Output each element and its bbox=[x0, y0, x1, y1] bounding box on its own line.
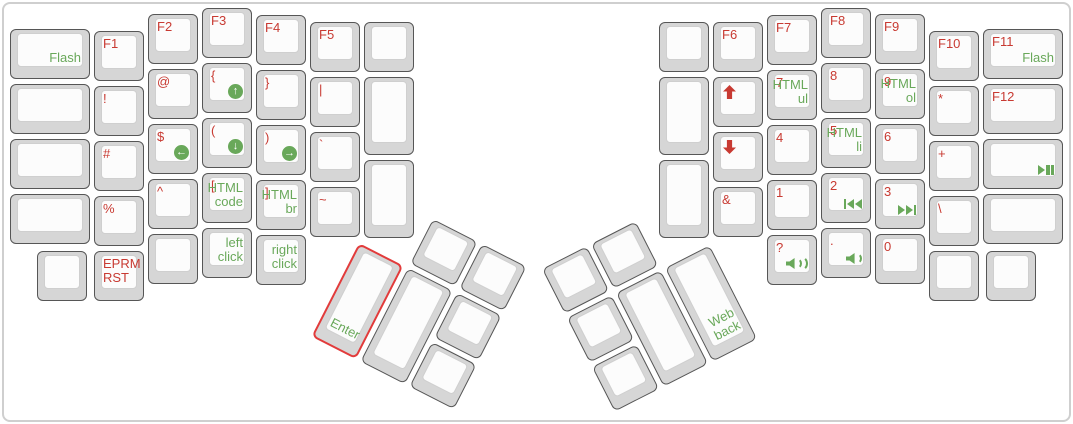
key-caret[interactable]: ^ bbox=[148, 179, 198, 229]
key-four[interactable]: 4 bbox=[767, 125, 817, 175]
key-dollar-mouse-left[interactable]: $← bbox=[148, 124, 198, 174]
keycap-surface bbox=[666, 26, 702, 60]
key-seven-html-ul[interactable]: 7HTML ul bbox=[767, 70, 817, 120]
keycap-surface bbox=[774, 74, 810, 108]
key-five-html-li[interactable]: 5HTML li bbox=[821, 118, 871, 168]
key-blank-r6t1[interactable] bbox=[659, 77, 709, 155]
keycap-surface bbox=[936, 255, 972, 289]
keycap-surface bbox=[882, 73, 918, 107]
keycap-surface bbox=[155, 238, 191, 272]
keycap-surface bbox=[317, 191, 353, 225]
keycap-surface bbox=[101, 200, 137, 234]
keycap-surface bbox=[882, 128, 918, 162]
keycap-surface bbox=[720, 26, 756, 60]
keycap-surface bbox=[990, 198, 1056, 232]
keycap-surface bbox=[263, 74, 299, 108]
keycap-surface bbox=[422, 226, 470, 273]
key-blank-l0r2[interactable] bbox=[10, 139, 90, 189]
key-plus[interactable]: + bbox=[929, 141, 979, 191]
key-six[interactable]: 6 bbox=[875, 124, 925, 174]
key-f8[interactable]: F8 bbox=[821, 8, 871, 58]
key-brace-open-mouse-up[interactable]: {↑ bbox=[202, 63, 252, 113]
key-f2[interactable]: F2 bbox=[148, 14, 198, 64]
key-blank-rb4[interactable] bbox=[986, 251, 1036, 301]
key-asterisk[interactable]: * bbox=[929, 86, 979, 136]
keycap-surface bbox=[774, 19, 810, 53]
keycap-surface bbox=[550, 253, 598, 300]
key-blank-lb2[interactable] bbox=[148, 234, 198, 284]
keycap-surface bbox=[828, 67, 864, 101]
key-one[interactable]: 1 bbox=[767, 180, 817, 230]
key-right-click[interactable]: right click bbox=[256, 235, 306, 285]
key-zero[interactable]: 0 bbox=[875, 234, 925, 284]
keycap-surface bbox=[17, 33, 83, 67]
key-at[interactable]: @ bbox=[148, 69, 198, 119]
keycap-surface bbox=[317, 26, 353, 60]
keycap-surface bbox=[828, 177, 864, 211]
keycap-surface bbox=[263, 184, 299, 218]
keycap-surface bbox=[155, 73, 191, 107]
keycap-surface bbox=[600, 351, 648, 398]
keycap-surface bbox=[371, 26, 407, 60]
key-eprm-rst[interactable]: EPRM RST bbox=[94, 251, 144, 301]
keycap-surface bbox=[155, 183, 191, 217]
key-f11-flash[interactable]: F11Flash bbox=[983, 29, 1063, 79]
key-blank-l0r3[interactable] bbox=[10, 194, 90, 244]
key-blank-l0r1[interactable] bbox=[10, 84, 90, 134]
keycap-surface bbox=[209, 122, 245, 156]
key-f12[interactable]: F12 bbox=[983, 84, 1063, 134]
keycap-surface bbox=[317, 81, 353, 115]
keycap-surface bbox=[882, 18, 918, 52]
keycap-surface bbox=[17, 198, 83, 232]
keycap-surface bbox=[828, 232, 864, 266]
keycap-surface bbox=[101, 145, 137, 179]
keycap-surface bbox=[263, 239, 299, 273]
keycap-surface bbox=[774, 129, 810, 163]
keycap-surface bbox=[666, 164, 702, 226]
keycap-surface bbox=[936, 145, 972, 179]
keycap-surface bbox=[990, 88, 1056, 122]
keycap-surface bbox=[774, 239, 810, 273]
keycap-surface bbox=[421, 349, 469, 396]
keycap-surface bbox=[774, 184, 810, 218]
key-pipe[interactable]: | bbox=[310, 77, 360, 127]
keycap-surface bbox=[720, 136, 756, 170]
key-arrow-up[interactable] bbox=[713, 77, 763, 127]
keycap-surface bbox=[599, 228, 647, 275]
keycap-surface bbox=[828, 122, 864, 156]
key-f6[interactable]: F6 bbox=[713, 22, 763, 72]
keycap-surface bbox=[209, 12, 245, 46]
keyboard-layout-canvas: EnterWeb backFlashF1!#%EPRM RSTF2@$←^F3{… bbox=[0, 0, 1073, 424]
key-backslash[interactable]: \ bbox=[929, 196, 979, 246]
key-blank-l6t1[interactable] bbox=[364, 77, 414, 155]
key-nine-html-ol[interactable]: 9HTML ol bbox=[875, 69, 925, 119]
keycap-surface bbox=[101, 35, 137, 69]
keycap-surface bbox=[471, 251, 519, 298]
keycap-surface bbox=[371, 81, 407, 143]
keycap-surface bbox=[317, 136, 353, 170]
keycap-surface bbox=[17, 88, 83, 122]
key-bracket-close-html-br[interactable]: ]HTML br bbox=[256, 180, 306, 230]
key-blank-rb3[interactable] bbox=[929, 251, 979, 301]
key-exclamation[interactable]: ! bbox=[94, 86, 144, 136]
key-flash[interactable]: Flash bbox=[10, 29, 90, 79]
keycap-surface bbox=[575, 302, 623, 349]
keycap-surface bbox=[17, 143, 83, 177]
keycap-surface bbox=[101, 255, 137, 289]
key-f7[interactable]: F7 bbox=[767, 15, 817, 65]
key-eight[interactable]: 8 bbox=[821, 63, 871, 113]
key-ampersand[interactable]: & bbox=[713, 187, 763, 237]
keycap-surface bbox=[371, 164, 407, 226]
key-bracket-open-html-code[interactable]: [HTML code bbox=[202, 173, 252, 223]
keycap-surface bbox=[263, 129, 299, 163]
keycap-surface bbox=[936, 200, 972, 234]
keycap-surface bbox=[993, 255, 1029, 289]
keycap-surface bbox=[882, 183, 918, 217]
keycap-surface bbox=[446, 300, 494, 347]
keycap-surface bbox=[155, 128, 191, 162]
key-f1[interactable]: F1 bbox=[94, 31, 144, 81]
keycap-surface bbox=[720, 191, 756, 225]
keycap-surface bbox=[936, 35, 972, 69]
key-f4[interactable]: F4 bbox=[256, 15, 306, 65]
keycap-surface bbox=[209, 232, 245, 266]
key-arrow-down[interactable] bbox=[713, 132, 763, 182]
key-play-pause[interactable] bbox=[983, 139, 1063, 189]
key-hash[interactable]: # bbox=[94, 141, 144, 191]
keycap-surface bbox=[209, 177, 245, 211]
key-tilde[interactable]: ~ bbox=[310, 187, 360, 237]
keycap-surface bbox=[44, 255, 80, 289]
key-f3[interactable]: F3 bbox=[202, 8, 252, 58]
key-brace-close[interactable]: } bbox=[256, 70, 306, 120]
key-blank-l6t2[interactable] bbox=[364, 160, 414, 238]
keycap-surface bbox=[936, 90, 972, 124]
key-blank-r0r3[interactable] bbox=[983, 194, 1063, 244]
keycap-surface bbox=[155, 18, 191, 52]
key-left-click[interactable]: left click bbox=[202, 228, 252, 278]
key-two-prev-track[interactable]: 2 bbox=[821, 173, 871, 223]
key-percent[interactable]: % bbox=[94, 196, 144, 246]
key-blank-lb0[interactable] bbox=[37, 251, 87, 301]
keycap-surface bbox=[990, 143, 1056, 177]
keycap-surface bbox=[720, 81, 756, 115]
key-paren-open-mouse-down[interactable]: (↓ bbox=[202, 118, 252, 168]
key-question-volume-up[interactable]: ? bbox=[767, 235, 817, 285]
key-period-volume-down[interactable]: . bbox=[821, 228, 871, 278]
key-backtick[interactable]: ` bbox=[310, 132, 360, 182]
keycap-surface bbox=[990, 33, 1056, 67]
keycap-surface bbox=[666, 81, 702, 143]
key-three-next-track[interactable]: 3 bbox=[875, 179, 925, 229]
keycap-surface bbox=[828, 12, 864, 46]
key-blank-l6r0[interactable] bbox=[364, 22, 414, 72]
key-f9[interactable]: F9 bbox=[875, 14, 925, 64]
key-blank-r6r0[interactable] bbox=[659, 22, 709, 72]
keycap-surface bbox=[209, 67, 245, 101]
key-paren-close-mouse-right[interactable]: )→ bbox=[256, 125, 306, 175]
key-f5[interactable]: F5 bbox=[310, 22, 360, 72]
keycap-surface bbox=[101, 90, 137, 124]
keycap-surface bbox=[882, 238, 918, 272]
key-f10[interactable]: F10 bbox=[929, 31, 979, 81]
keycap-surface bbox=[263, 19, 299, 53]
key-blank-r6t2[interactable] bbox=[659, 160, 709, 238]
